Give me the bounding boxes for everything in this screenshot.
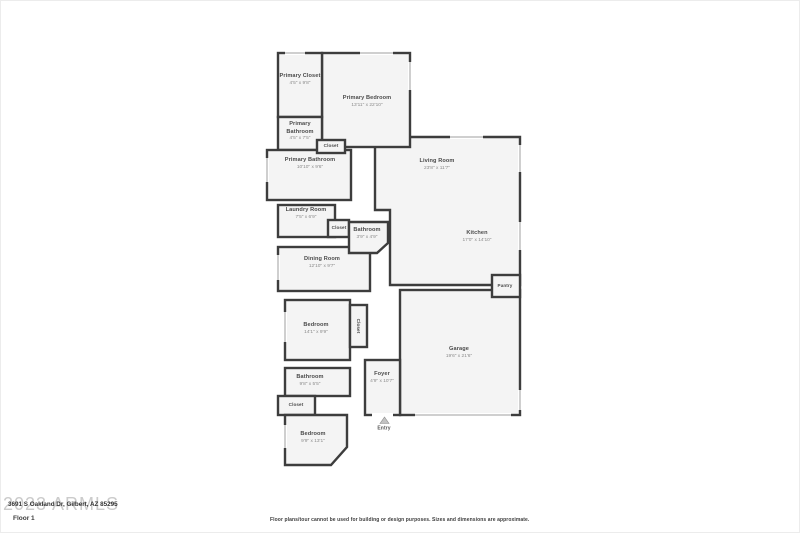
room-name: Primary Bedroom xyxy=(343,95,391,103)
room-dims: 3'9" x 4'9" xyxy=(353,235,380,241)
room-label-bedroom-bottom: Bedroom 9'9" x 13'1" xyxy=(300,431,325,445)
room-name: Bathroom xyxy=(353,227,380,235)
room-label-laundry: Laundry Room 7'5" x 6'9" xyxy=(286,207,327,221)
room-name: Closet xyxy=(289,402,304,408)
room-dims: 4'5" x 7'5" xyxy=(281,136,319,142)
room-dims: 10'10" x 9'6" xyxy=(285,165,335,171)
room-label-bedroom-mid: Bedroom 14'1" x 9'9" xyxy=(303,322,328,336)
room-label-closet-4: Closet xyxy=(289,402,304,408)
room-dims: 4'9" x 10'7" xyxy=(370,379,394,385)
room-name: Closet xyxy=(332,225,347,231)
room-name: Bedroom xyxy=(300,431,325,439)
room-name: Foyer xyxy=(370,371,394,379)
room-label-dining: Dining Room 12'10" x 9'7" xyxy=(304,256,340,270)
room-label-closet-3: Closet xyxy=(355,319,361,334)
room-name: Bathroom xyxy=(296,374,323,382)
room-dims: 13'11" x 22'10" xyxy=(343,103,391,109)
room-name: Living Room xyxy=(420,158,455,166)
room-name: Laundry Room xyxy=(286,207,327,215)
room-dims: 9'9" x 13'1" xyxy=(300,439,325,445)
room-label-bathroom-bottom: Bathroom 9'8" x 5'5" xyxy=(296,374,323,388)
room-name: Closet xyxy=(355,319,361,334)
room-dims: 17'0" x 14'10" xyxy=(463,238,492,244)
room-label-primary-bathroom-small: Primary Bathroom 4'5" x 7'5" xyxy=(281,121,319,143)
room-dims: 14'1" x 9'9" xyxy=(303,330,328,336)
room-name: Closet xyxy=(324,143,339,149)
disclaimer-text: Floor plans/tour cannot be used for buil… xyxy=(270,517,529,523)
room-name: Primary Closet xyxy=(280,73,321,81)
room-shape-foyer xyxy=(365,360,400,415)
room-label-living: Living Room 23'8" x 11'7" xyxy=(420,158,455,172)
room-label-kitchen: Kitchen 17'0" x 14'10" xyxy=(463,230,492,244)
room-label-primary-bedroom: Primary Bedroom 13'11" x 22'10" xyxy=(343,95,391,109)
room-name: Primary Bathroom xyxy=(285,157,335,165)
room-dims: 19'6" x 21'6" xyxy=(446,354,472,360)
room-label-bathroom-mid: Bathroom 3'9" x 4'9" xyxy=(353,227,380,241)
entry-text: Entry xyxy=(377,426,390,433)
room-name: Kitchen xyxy=(463,230,492,238)
floor-plan: Primary Closet 4'5" x 9'8" Primary Bedro… xyxy=(265,50,525,465)
entry-arrow-icon xyxy=(380,417,389,424)
room-label-primary-closet: Primary Closet 4'5" x 9'8" xyxy=(280,73,321,87)
room-label-primary-bathroom: Primary Bathroom 10'10" x 9'6" xyxy=(285,157,335,171)
room-name: Garage xyxy=(446,346,472,354)
room-dims: 9'8" x 5'5" xyxy=(296,382,323,388)
entry-label: Entry xyxy=(377,426,390,433)
room-label-garage: Garage 19'6" x 21'6" xyxy=(446,346,472,360)
room-label-closet-1: Closet xyxy=(324,143,339,149)
room-dims: 23'8" x 11'7" xyxy=(420,166,455,172)
room-name: Primary Bathroom xyxy=(281,121,319,136)
room-name: Dining Room xyxy=(304,256,340,264)
address-text: 3691 S Oakland Dr, Gilbert, AZ 85295 xyxy=(8,501,118,508)
room-dims: 12'10" x 9'7" xyxy=(304,264,340,270)
room-dims: 7'5" x 6'9" xyxy=(286,215,327,221)
room-dims: 4'5" x 9'8" xyxy=(280,81,321,87)
floor-label: Floor 1 xyxy=(13,515,35,522)
room-name: Pantry xyxy=(498,283,513,289)
room-label-foyer: Foyer 4'9" x 10'7" xyxy=(370,371,394,385)
room-name: Bedroom xyxy=(303,322,328,330)
room-label-pantry: Pantry xyxy=(498,283,513,289)
room-label-closet-2: Closet xyxy=(332,225,347,231)
